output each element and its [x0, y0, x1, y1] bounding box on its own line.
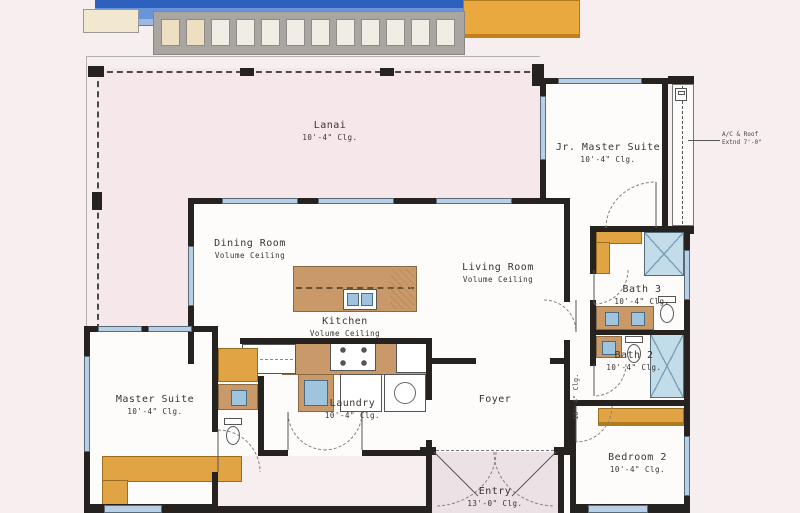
room-name: Master Suite [95, 394, 215, 407]
island-sink-bowl [347, 293, 359, 306]
window [84, 356, 90, 452]
detail-marker-glyph [678, 91, 685, 95]
jr-suite-door-arc [606, 182, 656, 228]
island-sink-frame [343, 289, 377, 310]
room-ceiling: 10'-4" Clg. [598, 363, 670, 372]
wall [262, 450, 288, 456]
note-leader-line [688, 140, 720, 141]
water-closet-toilet-tank [224, 418, 242, 425]
hall-vanity [218, 384, 258, 410]
window [222, 198, 298, 204]
hall-door-arc [544, 300, 576, 332]
hall-vanity-sink [231, 390, 247, 406]
window [104, 505, 162, 513]
roof-edge-line-h [86, 56, 540, 57]
sun-deck [463, 0, 580, 38]
lanai-post [88, 66, 104, 77]
window [588, 505, 648, 513]
master-door-arc [218, 430, 260, 472]
room-name: Bath 2 [598, 350, 670, 363]
wall [215, 506, 426, 513]
window [558, 78, 642, 84]
room-ceiling: Volume Ceiling [438, 275, 558, 284]
entry-header-line [436, 450, 554, 451]
window [318, 198, 394, 204]
room-label-kitchen: Kitchen Volume Ceiling [290, 316, 400, 338]
room-label-entry: Entry 13'-0" Clg. [430, 486, 560, 508]
room-label-bath-2: Bath 2 10'-4" Clg. [598, 350, 670, 372]
island-sink-bowl [361, 293, 373, 306]
room-label-jr-master-suite: Jr. Master Suite 10'-4" Clg. [548, 142, 668, 164]
detail-marker [675, 88, 687, 101]
lanai-post [380, 68, 394, 76]
wall [432, 358, 476, 364]
roof-extension-centerline [682, 86, 683, 224]
room-label-dining-room: Dining Room Volume Ceiling [195, 238, 305, 260]
lanai-open-edge-top [97, 71, 540, 73]
hall-ceiling-note: 10'-4" Clg. [572, 374, 580, 420]
wall [564, 340, 570, 452]
room-label-foyer: Foyer [455, 394, 535, 407]
room-name: Dining Room [195, 238, 305, 251]
room-ceiling: 10'-4" Clg. [585, 465, 690, 474]
bath3-vanity [596, 306, 654, 330]
room-name: Kitchen [290, 316, 400, 329]
kitchen-island [293, 266, 417, 312]
paver [411, 19, 430, 46]
room-name: Jr. Master Suite [548, 142, 668, 155]
window [436, 198, 512, 204]
window [98, 326, 142, 332]
entry-jamb [554, 447, 570, 455]
paver [386, 19, 405, 46]
bath3-sink [605, 312, 619, 326]
room-label-bath-3: Bath 3 10'-4" Clg. [606, 284, 678, 306]
room-ceiling: 10'-4" Clg. [270, 133, 390, 142]
room-ceiling: 10'-4" Clg. [95, 407, 215, 416]
island-hatch [390, 269, 414, 309]
roof-note-line2: Extnd 7'-0" [722, 139, 774, 147]
lanai-post [240, 68, 254, 76]
paver [161, 19, 180, 46]
floor-plan: Lanai 10'-4" Clg. Jr. Master Suite 10'-4… [0, 0, 800, 513]
paver [236, 19, 255, 46]
room-name: Living Room [438, 262, 558, 275]
room-name: Lanai [270, 120, 390, 133]
hall-linen-cabinet [218, 348, 258, 382]
window [684, 250, 690, 300]
wall [590, 226, 596, 274]
room-ceiling: 13'-0" Clg. [430, 499, 560, 508]
equipment-pad [83, 9, 139, 33]
wall [564, 198, 570, 302]
paver [336, 19, 355, 46]
wall [550, 358, 570, 364]
room-name: Bedroom 2 [585, 452, 690, 465]
range-stove [330, 340, 376, 371]
room-name: Laundry [295, 398, 410, 411]
paver [436, 19, 455, 46]
room-label-laundry: Laundry 10'-4" Clg. [295, 398, 410, 420]
roof-edge-line-v [86, 56, 87, 328]
lanai-post [92, 192, 102, 210]
room-name: Foyer [455, 394, 535, 407]
bedroom2-door-arc [576, 406, 612, 442]
paver [286, 19, 305, 46]
window [148, 326, 192, 332]
paver-walkway [153, 11, 465, 55]
room-label-living-room: Living Room Volume Ceiling [438, 262, 558, 284]
room-name: Bath 3 [606, 284, 678, 297]
room-ceiling: Volume Ceiling [290, 329, 400, 338]
room-name: Entry [430, 486, 560, 499]
window [188, 246, 194, 306]
wall [212, 326, 218, 432]
strip-wall-stub-top [668, 76, 694, 84]
refrigerator [396, 342, 428, 373]
room-label-lanai: Lanai 10'-4" Clg. [270, 120, 390, 142]
room-ceiling: Volume Ceiling [195, 251, 305, 260]
room-ceiling: 10'-4" Clg. [606, 297, 678, 306]
room-label-bedroom-2: Bedroom 2 10'-4" Clg. [585, 452, 690, 474]
bath3-toilet-bowl [660, 304, 674, 323]
roof-note-line1: A/C & Roof [722, 131, 774, 139]
paver [361, 19, 380, 46]
bath2-toilet-tank [625, 336, 643, 343]
wall [595, 330, 688, 335]
room-ceiling: 10'-4" Clg. [548, 155, 668, 164]
window [540, 96, 546, 160]
paver [261, 19, 280, 46]
paver [211, 19, 230, 46]
roof-extension-note: A/C & Roof Extnd 7'-0" [722, 131, 774, 147]
wall [240, 338, 432, 344]
room-ceiling: 10'-4" Clg. [295, 411, 410, 420]
roof-extension-strip [672, 84, 694, 226]
wall [426, 338, 432, 400]
bath3-shower [644, 232, 684, 276]
paver [311, 19, 330, 46]
room-label-master-suite: Master Suite 10'-4" Clg. [95, 394, 215, 416]
bath3-sink [631, 312, 645, 326]
paver [186, 19, 205, 46]
